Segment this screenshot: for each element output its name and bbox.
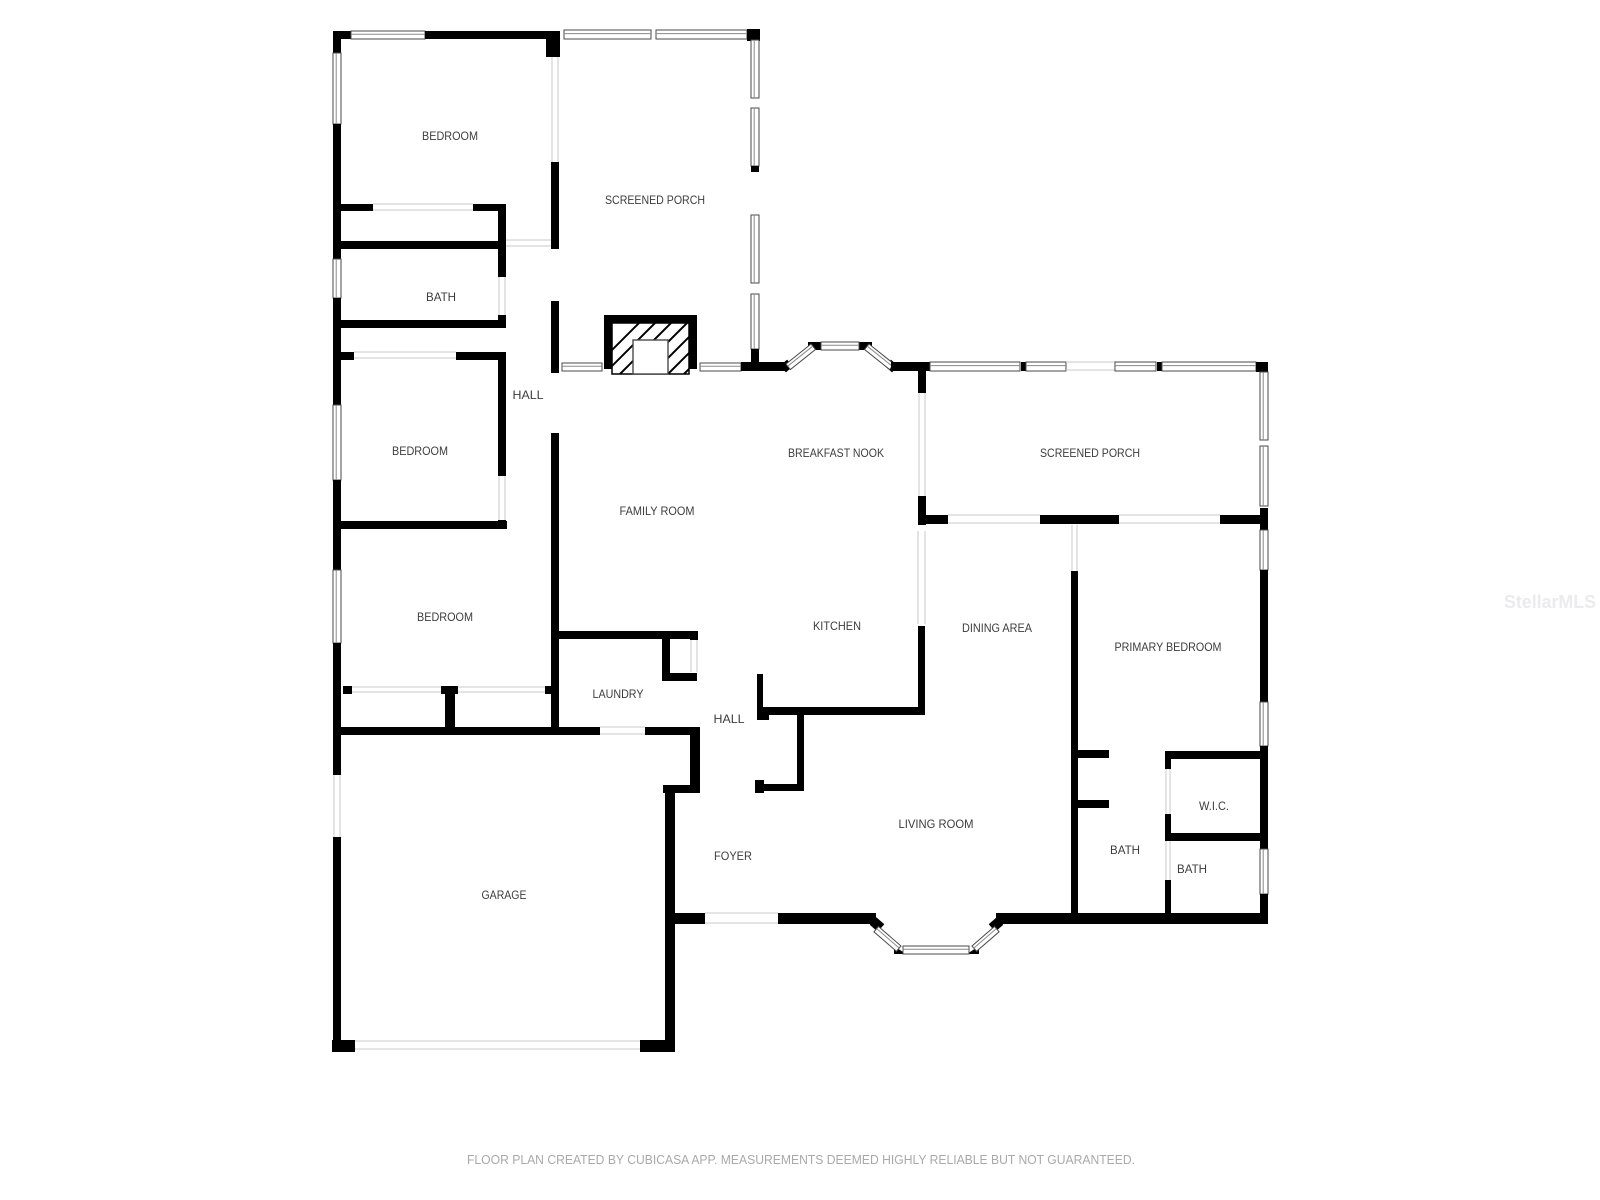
svg-text:GARAGE: GARAGE (482, 888, 527, 902)
svg-text:BATH: BATH (1177, 862, 1207, 876)
svg-text:KITCHEN: KITCHEN (813, 619, 861, 633)
svg-text:StellarMLS: StellarMLS (1504, 591, 1596, 612)
svg-text:LAUNDRY: LAUNDRY (593, 687, 644, 701)
svg-text:FAMILY ROOM: FAMILY ROOM (620, 504, 695, 518)
svg-text:HALL: HALL (714, 712, 745, 726)
svg-text:BATH: BATH (426, 290, 456, 304)
svg-text:SCREENED PORCH: SCREENED PORCH (1040, 446, 1140, 460)
svg-text:LIVING ROOM: LIVING ROOM (899, 817, 974, 831)
svg-text:DINING AREA: DINING AREA (962, 621, 1032, 635)
svg-text:BEDROOM: BEDROOM (392, 444, 448, 458)
svg-text:W.I.C.: W.I.C. (1199, 799, 1229, 813)
svg-text:BEDROOM: BEDROOM (422, 129, 478, 143)
svg-text:HALL: HALL (513, 388, 544, 402)
svg-text:FLOOR PLAN CREATED BY CUBICASA: FLOOR PLAN CREATED BY CUBICASA APP. MEAS… (467, 1153, 1135, 1167)
svg-text:FOYER: FOYER (714, 849, 752, 863)
svg-text:SCREENED PORCH: SCREENED PORCH (605, 193, 705, 207)
svg-text:BATH: BATH (1110, 843, 1140, 857)
svg-text:PRIMARY BEDROOM: PRIMARY BEDROOM (1115, 640, 1222, 654)
svg-text:BEDROOM: BEDROOM (417, 610, 473, 624)
svg-text:BREAKFAST NOOK: BREAKFAST NOOK (788, 446, 884, 460)
